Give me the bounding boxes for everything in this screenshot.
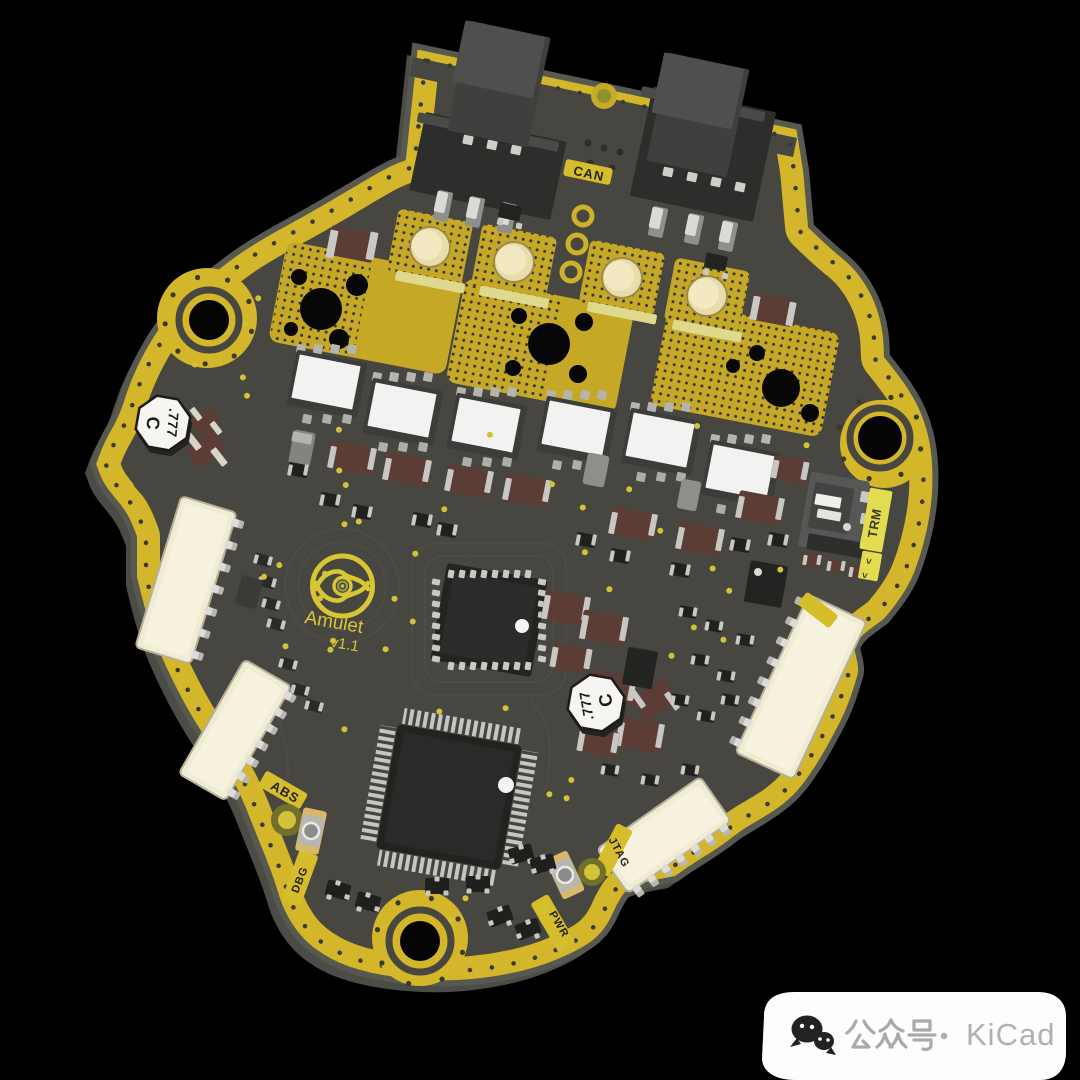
svg-text:KiCad: KiCad xyxy=(966,1017,1055,1052)
svg-text:C: C xyxy=(142,416,163,431)
svg-text:.777: .777 xyxy=(164,408,182,439)
